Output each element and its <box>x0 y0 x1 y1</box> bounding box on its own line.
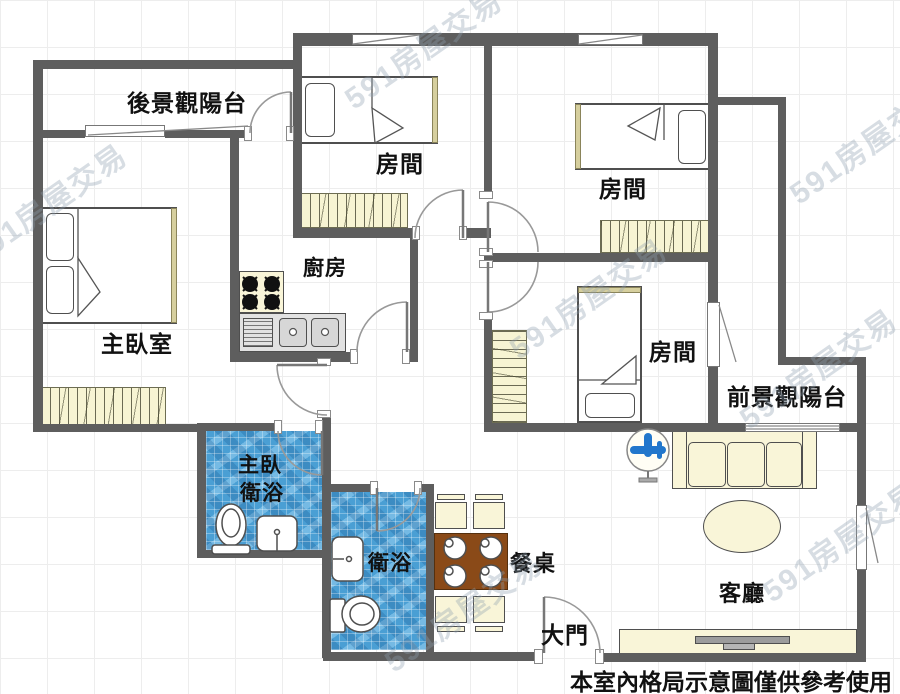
door-jamb <box>350 349 358 364</box>
window <box>707 302 720 367</box>
wall <box>857 570 866 662</box>
dining-chair <box>435 596 467 623</box>
wall <box>410 238 418 362</box>
wall <box>708 33 718 302</box>
pillow <box>305 83 335 137</box>
wall <box>230 130 239 362</box>
wall <box>197 423 206 558</box>
wall <box>197 550 331 558</box>
dining-chair <box>437 494 465 500</box>
sofa-cushion <box>766 442 802 487</box>
window <box>85 125 165 137</box>
kitchen-sink <box>279 318 307 347</box>
bed-edge <box>171 208 177 323</box>
door-jamb <box>370 481 378 495</box>
sofa-armrest <box>672 431 687 489</box>
wardrobe <box>492 330 527 423</box>
window <box>856 505 867 570</box>
label-master-bath-2: 衛浴 <box>240 477 284 507</box>
disclaimer-text: 本室內格局示意圖僅供參考使用 <box>570 663 892 694</box>
window <box>745 423 840 432</box>
wall <box>293 228 418 238</box>
wardrobe <box>300 193 408 228</box>
label-kitchen: 廚房 <box>303 252 347 282</box>
wall <box>840 423 863 432</box>
label-bedroom-2: 房間 <box>599 170 647 204</box>
wall <box>426 484 434 654</box>
wardrobe <box>600 220 710 253</box>
dining-chair <box>473 596 505 623</box>
label-main-door: 大門 <box>541 616 589 650</box>
wall <box>33 60 43 432</box>
wall <box>230 352 357 362</box>
wardrobe <box>40 387 166 425</box>
wall <box>33 130 85 138</box>
wall <box>293 33 302 238</box>
sofa-armrest <box>802 431 817 489</box>
door-jamb <box>317 410 331 418</box>
label-bath: 衛浴 <box>368 547 412 577</box>
fan-icon <box>627 429 669 482</box>
pillow <box>585 393 635 418</box>
pillow <box>678 110 706 164</box>
floor-plan: 後景觀陽台 房間 房間 主臥室 廚房 房間 前景觀陽台 主臥 衛浴 衛浴 餐桌 … <box>0 0 900 694</box>
wall <box>484 33 492 197</box>
door-jamb <box>479 248 493 256</box>
wall <box>33 424 206 432</box>
wall <box>165 130 250 138</box>
pillow <box>46 266 74 314</box>
door-jamb <box>479 191 493 199</box>
window <box>352 34 420 45</box>
label-bedroom-1: 房間 <box>376 145 424 179</box>
door-jamb <box>286 126 294 141</box>
door-jamb <box>402 349 410 364</box>
label-bedroom-3: 房間 <box>649 333 697 367</box>
dining-chair <box>475 626 503 632</box>
kitchen-sink <box>311 318 339 347</box>
watermark: 591房屋交易 <box>729 296 900 438</box>
wall <box>778 97 786 365</box>
wall <box>484 317 492 432</box>
door-jamb <box>595 649 604 664</box>
door-jamb <box>244 126 252 141</box>
door-jamb <box>274 420 282 434</box>
label-front-balcony: 前景觀陽台 <box>727 378 847 412</box>
dining-chair <box>475 494 503 500</box>
label-master-bath-1: 主臥 <box>238 449 282 479</box>
bed-edge <box>578 287 641 293</box>
sofa-cushion <box>688 442 726 487</box>
label-living-room: 客廳 <box>719 576 765 608</box>
door-jamb <box>315 420 323 434</box>
wall <box>322 415 331 658</box>
wall <box>33 60 295 69</box>
door-jamb <box>414 481 422 495</box>
door-jamb <box>534 649 543 664</box>
door-jamb <box>317 358 331 366</box>
coffee-table <box>703 500 781 553</box>
door-jamb <box>412 226 420 240</box>
tv-stand <box>723 643 755 650</box>
wall <box>598 653 866 662</box>
sofa-cushion <box>727 442 765 487</box>
wall <box>778 357 863 365</box>
wall <box>463 228 491 238</box>
label-master-bedroom: 主臥室 <box>101 325 173 359</box>
dining-chair <box>437 626 465 632</box>
wall <box>197 423 282 431</box>
stove <box>239 271 284 313</box>
door-jamb <box>459 226 467 240</box>
wall <box>713 97 786 105</box>
pillow <box>46 213 74 261</box>
drainboard <box>243 318 273 347</box>
door-jamb <box>479 260 493 268</box>
dining-chair <box>473 502 505 529</box>
window <box>578 34 643 45</box>
door-jamb <box>479 312 493 320</box>
label-rear-balcony: 後景觀陽台 <box>127 84 247 118</box>
bed-edge <box>432 77 438 143</box>
wall <box>484 423 745 432</box>
wall <box>484 253 712 262</box>
label-dining-table: 餐桌 <box>510 546 556 578</box>
bed-edge <box>575 104 581 169</box>
watermark: 591房屋交易 <box>779 71 900 213</box>
dining-table-surface <box>434 533 508 590</box>
dining-chair <box>435 502 467 529</box>
